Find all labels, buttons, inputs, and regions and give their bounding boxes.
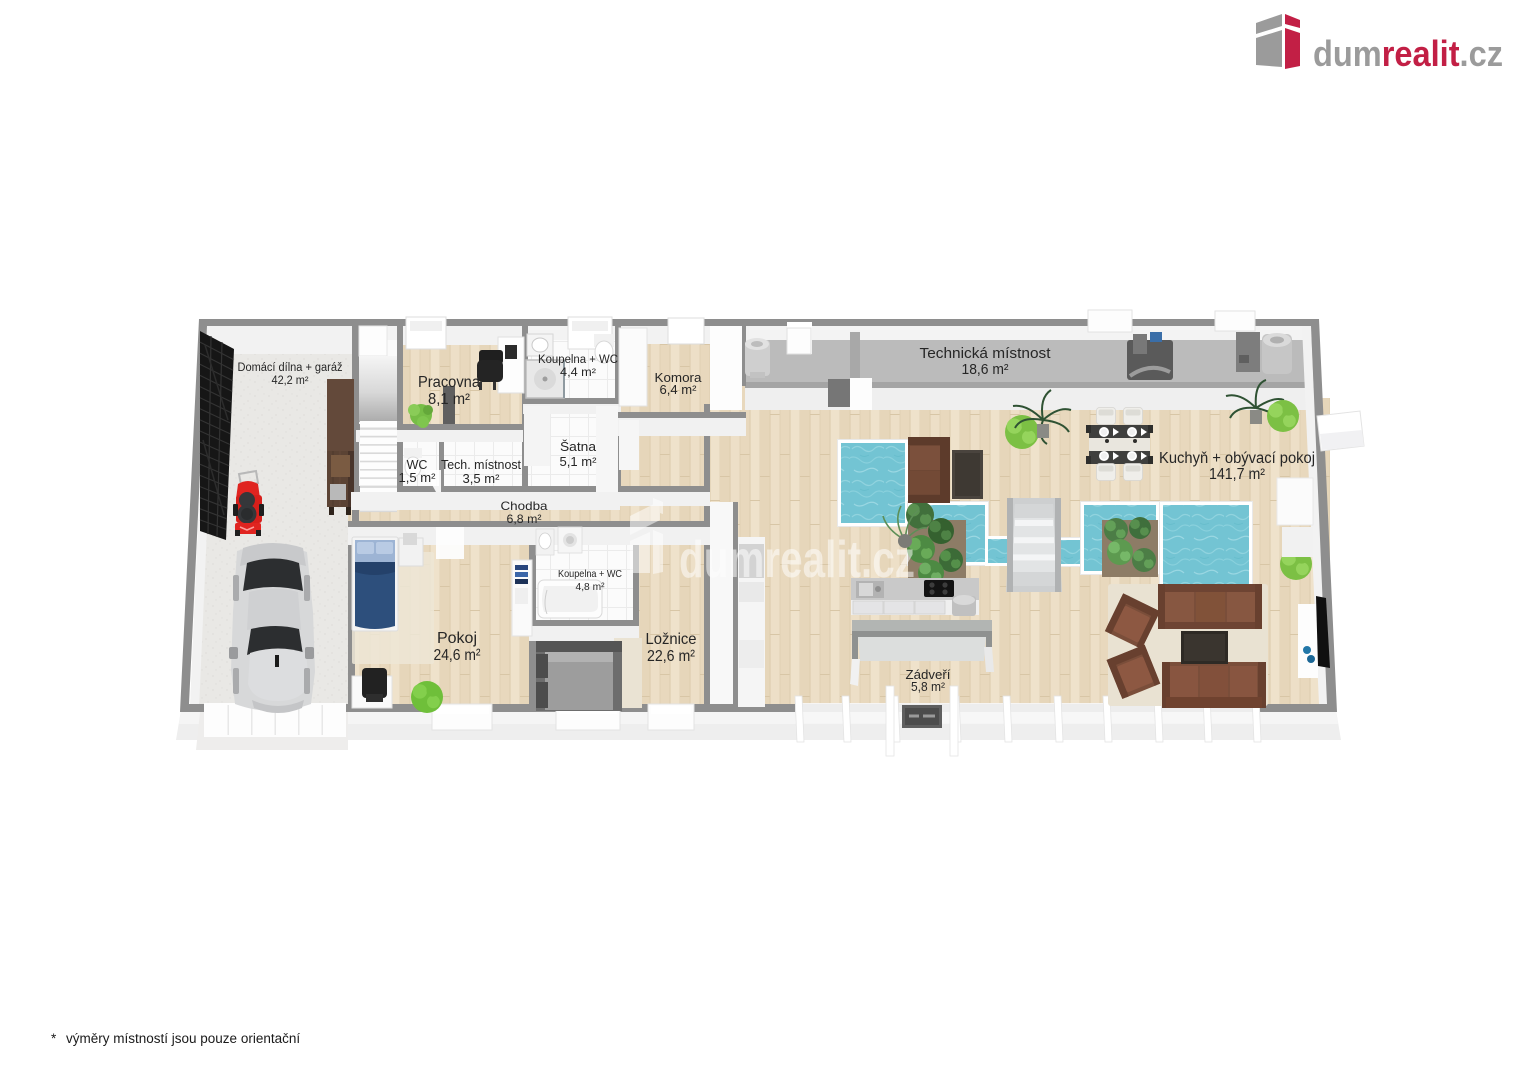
svg-text:Pracovna: Pracovna [418,374,480,391]
svg-text:8,1 m²: 8,1 m² [428,391,470,408]
svg-text:Tech. místnost: Tech. místnost [441,458,522,472]
svg-text:5,8 m²: 5,8 m² [911,680,945,694]
svg-text:Koupelna + WC: Koupelna + WC [558,568,622,580]
svg-text:Domácí dílna + garáž: Domácí dílna + garáž [238,362,343,374]
svg-text:*: * [51,1031,57,1046]
svg-text:Koupelna + WC: Koupelna + WC [538,354,618,366]
svg-text:42,2 m²: 42,2 m² [272,375,309,387]
svg-text:Chodba: Chodba [501,499,548,513]
svg-text:dumrealit.cz: dumrealit.cz [679,531,915,589]
svg-text:Šatna: Šatna [560,439,596,454]
svg-text:141,7 m²: 141,7 m² [1209,466,1265,483]
svg-text:24,6 m²: 24,6 m² [434,647,482,664]
svg-text:1,5 m²: 1,5 m² [399,471,436,485]
svg-text:3,5 m²: 3,5 m² [463,472,500,486]
svg-text:výměry místností jsou pouze or: výměry místností jsou pouze orientační [66,1031,300,1046]
svg-text:6,4 m²: 6,4 m² [660,382,698,397]
svg-text:6,8 m²: 6,8 m² [507,512,542,526]
svg-text:4,4 m²: 4,4 m² [560,367,596,379]
svg-text:Ložnice: Ložnice [646,631,697,648]
svg-text:18,6 m²: 18,6 m² [962,362,1009,378]
svg-text:WC: WC [407,458,428,472]
svg-text:4,8 m²: 4,8 m² [576,581,605,593]
svg-text:22,6 m²: 22,6 m² [647,648,696,665]
svg-text:dumrealit.cz: dumrealit.cz [1313,33,1503,74]
svg-text:Technická místnost: Technická místnost [920,346,1051,362]
svg-text:Pokoj: Pokoj [437,630,477,647]
svg-text:Kuchyň + obývací pokoj: Kuchyň + obývací pokoj [1159,450,1315,467]
svg-text:5,1 m²: 5,1 m² [560,455,597,469]
